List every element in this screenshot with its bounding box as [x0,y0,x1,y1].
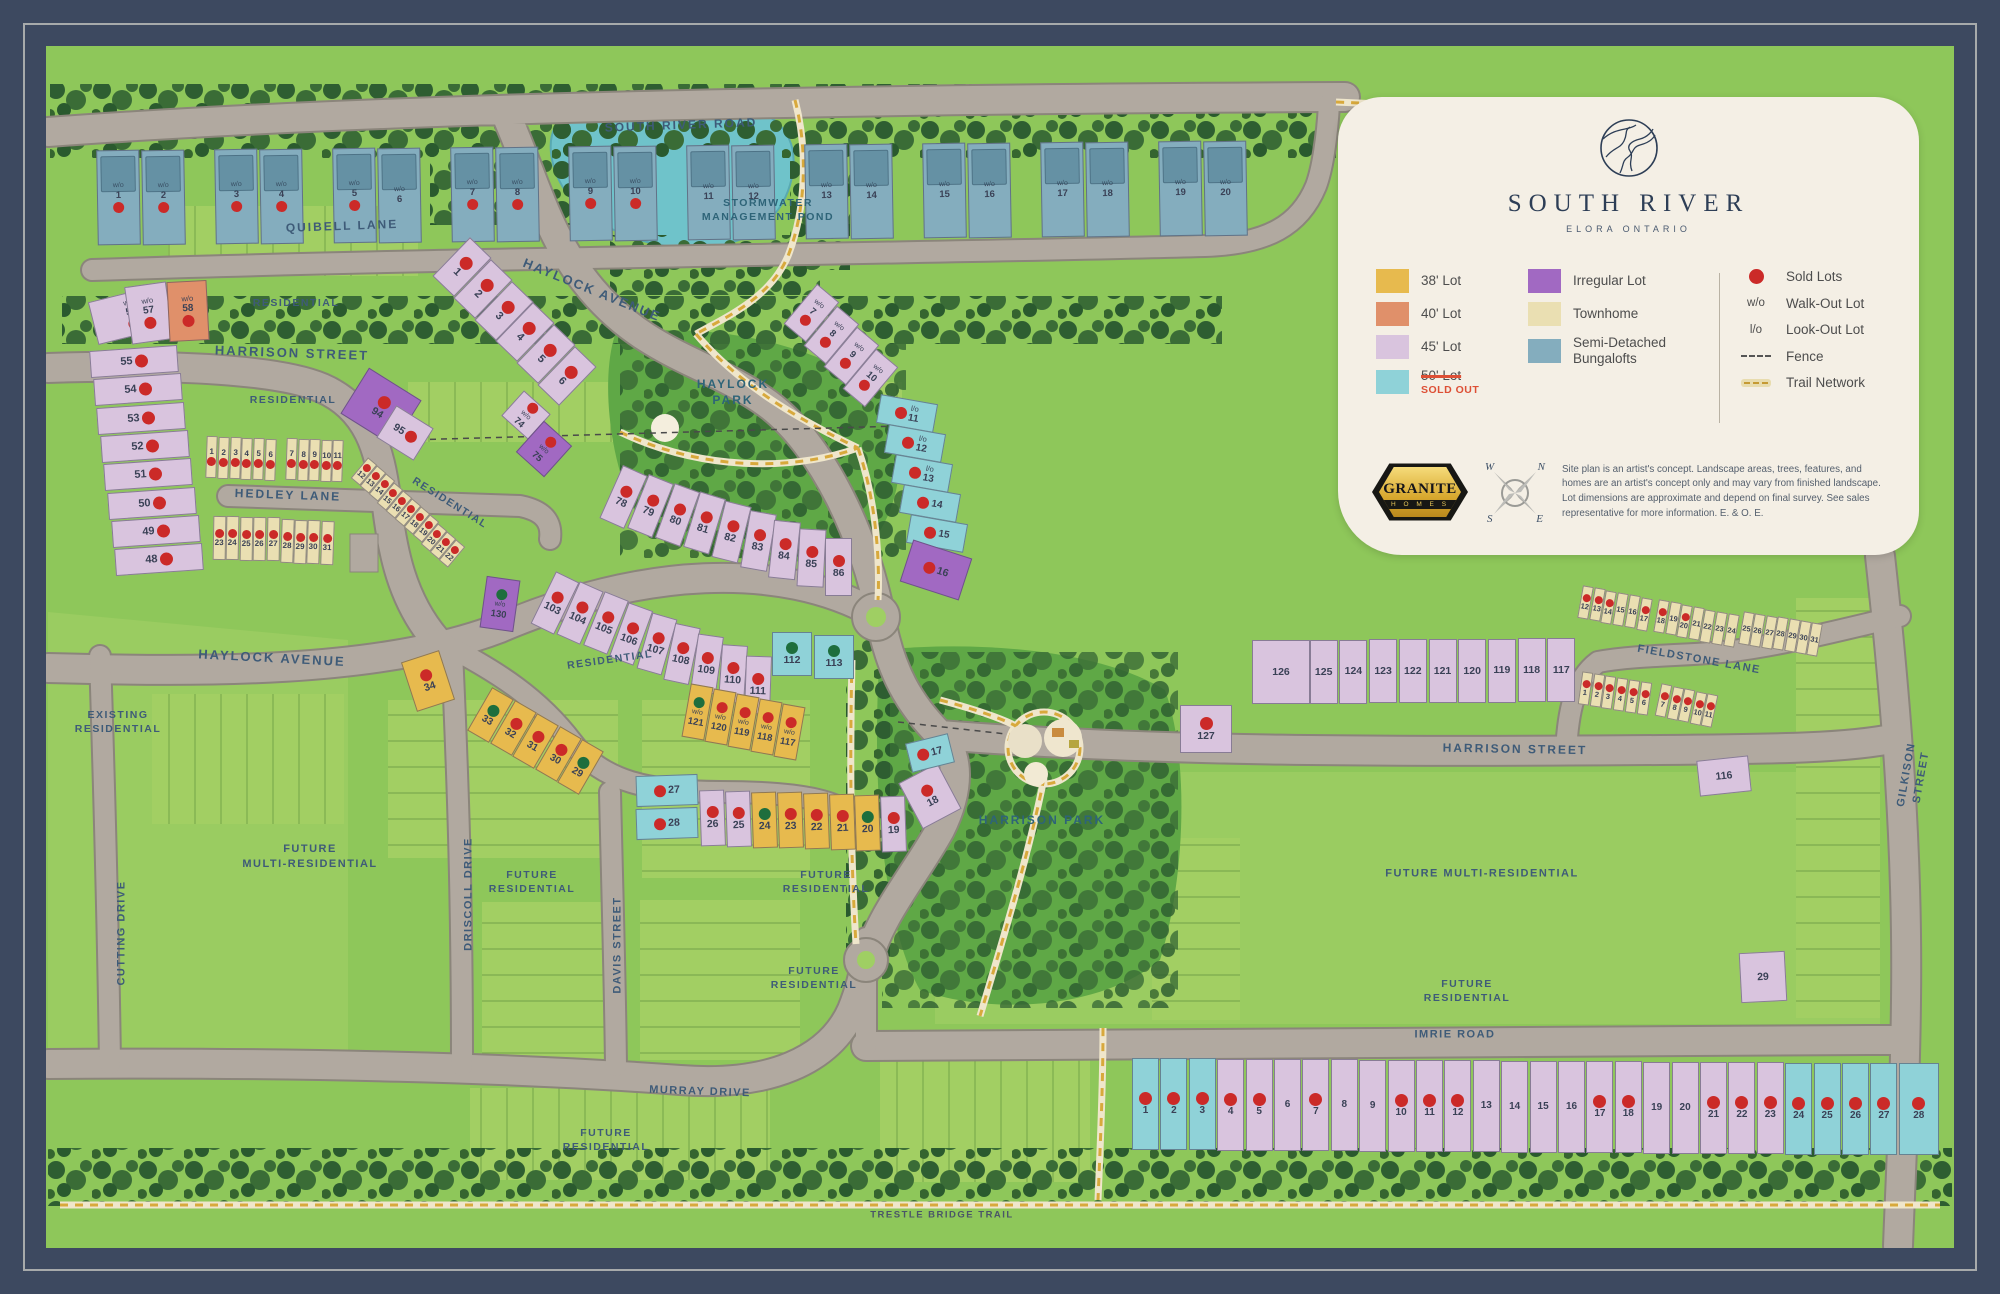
lot-number: 118 [756,731,773,743]
sold-dot [922,560,937,575]
sold-dot [732,807,744,819]
lot-hedleyB-7[interactable]: 7 [285,438,297,480]
lot-quibell-11[interactable]: w/o11 [686,145,731,241]
legend-label: Fence [1786,349,1824,365]
lot-quibell-15[interactable]: w/o15 [922,143,967,239]
sold-dot [266,459,275,468]
lot-number: 8 [1671,703,1677,711]
lot-number: 25 [733,820,745,831]
lot-number: 121 [1434,666,1452,677]
lot-imrie-4[interactable]: 4 [1217,1059,1244,1151]
lot-number: 10 [322,451,331,459]
legend-row: Fence [1738,349,1933,365]
lot-imrie-15[interactable]: 15 [1530,1061,1557,1153]
sold-dot [1200,717,1213,730]
lot-quibell-6[interactable]: w/o6 [377,147,422,243]
lot-quibell-2[interactable]: w/o2 [141,149,186,245]
sold-dot [779,537,792,550]
lot-number: 116 [1715,770,1733,782]
lot-t112113-113[interactable]: 113 [814,635,854,679]
lot-number: 52 [131,441,144,453]
lot-row7886-85[interactable]: 85 [797,529,827,588]
sold-dot [1423,1094,1436,1107]
lot-number: 49 [142,526,155,538]
lot-number: 9 [1683,706,1689,714]
lot-number: 4 [1617,695,1622,703]
lot-number: 24 [228,539,237,547]
lot-number: 31 [1810,635,1820,644]
lot-number: 3 [493,310,505,322]
sold-dot [1764,1096,1777,1109]
lot-number: 3 [1200,1106,1206,1116]
lot-quibell-10[interactable]: w/o10 [613,145,658,241]
lot-row7886-86[interactable]: 86 [825,538,852,596]
lot-number: 12 [748,192,759,202]
legend-divider [1719,273,1720,423]
lot-number: 26 [1753,626,1763,635]
reserved-dot [861,811,873,823]
lot-row126117-123[interactable]: 123 [1369,639,1397,703]
lot-number: 30 [309,543,318,551]
legend-label: Trail Network [1786,375,1865,391]
sold-dot [806,546,819,559]
frame-left [0,0,46,1294]
lot-number: 28 [668,818,680,829]
lot-number: 12 [1452,1108,1463,1118]
sold-dot [1196,1092,1209,1105]
lot-number: 11 [907,413,919,425]
lot-number: 6 [1285,1100,1291,1110]
trail-icon [1741,379,1771,387]
lot-number: 82 [723,532,737,545]
lot-row2619-21[interactable]: 21 [829,794,856,851]
building-footprint [1044,148,1080,185]
lot-number: 25 [1742,624,1752,633]
lot-number: 1 [451,266,463,278]
sold-dot [1139,1092,1152,1105]
lot-quibell-8[interactable]: w/o8 [495,146,540,242]
lot-number: 19 [888,825,900,836]
lot-quibell-14[interactable]: w/o14 [849,143,894,239]
lot-number: 120 [710,721,727,733]
lot-imrie-21[interactable]: 21 [1700,1062,1727,1154]
lot-number: 17 [930,745,944,758]
lot-row126117-126[interactable]: 126 [1252,640,1310,704]
lot-row126117-120[interactable]: 120 [1458,639,1486,703]
sold-dot [145,439,159,453]
lot-hedleyB-11[interactable]: 11 [332,440,344,482]
lot-hedleyC-24[interactable]: 24 [226,516,239,560]
prefix-icon: l/o [1750,324,1762,336]
lot-hedleyB-8[interactable]: 8 [297,438,309,480]
building-footprint [735,150,771,187]
lot-number: 2 [472,288,484,300]
lot-number: 120 [1463,666,1481,677]
building-footprint [336,154,372,191]
sold-dot [762,711,775,724]
lot-imrie-13[interactable]: 13 [1473,1060,1500,1152]
lot-leftcol-49[interactable]: 49 [111,515,201,548]
sold-dot [296,532,305,541]
lot-number: 21 [1708,1110,1719,1120]
frame-right [1954,0,2000,1294]
lot-number: 58 [182,304,194,315]
lot-imrie-16[interactable]: 16 [1558,1061,1585,1153]
lot-number: 9 [312,451,317,459]
lot-number: 86 [833,568,845,579]
lot-number: 2 [1594,691,1599,699]
compass-n: N [1538,461,1545,473]
lot-row2619-25[interactable]: 25 [725,790,752,847]
legend-label: 45' Lot [1421,339,1461,354]
lot-number: 124 [1345,666,1363,677]
lot-number: 5 [256,450,261,458]
building-footprint [690,151,726,188]
lot-number: 24 [759,821,771,832]
building-footprint [100,156,136,193]
lot-number: 29 [1787,631,1797,640]
lot-row2619-19[interactable]: 19 [880,795,907,852]
lot-number: 107 [645,643,665,658]
lot-number: 53 [127,413,140,425]
building-footprint [145,155,181,192]
lot-imrie-20[interactable]: 20 [1672,1062,1699,1154]
lot-t112113-112[interactable]: 112 [772,632,812,676]
lot-number: 26 [707,819,719,830]
sold-dot [182,315,195,328]
lot-row126117-125[interactable]: 125 [1310,640,1338,704]
lot-number: 23 [215,539,224,547]
lot-number: 18 [1102,189,1113,199]
sold-dot [113,201,124,212]
lot-number: 9 [1370,1101,1376,1111]
lot-imrie-25[interactable]: 25 [1814,1063,1841,1155]
building-footprint [808,150,844,187]
sold-dot [283,532,292,541]
sold-dot [254,459,263,468]
building-footprint [499,152,535,189]
lot-number: 29 [1757,971,1769,982]
sold-dot [1224,1093,1237,1106]
lot-number: 7 [1313,1107,1319,1117]
frame-bottom [0,1248,2000,1294]
lot-imrie-17[interactable]: 17 [1586,1061,1613,1153]
lot-row126117-122[interactable]: 122 [1399,639,1427,703]
lot-imrie-22[interactable]: 22 [1728,1062,1755,1154]
sold-dot [1395,1094,1408,1107]
lot-number: 5 [352,189,357,199]
lot-number: 28 [1913,1111,1924,1121]
building-footprint [263,154,299,191]
lot-imrie-18[interactable]: 18 [1615,1061,1642,1153]
sold-dot [1167,1092,1180,1105]
lot-imrie-2[interactable]: 2 [1160,1058,1187,1150]
lot-hedleyA-6[interactable]: 6 [264,438,276,480]
compass-w: W [1485,461,1494,473]
lot-quibell-7[interactable]: w/o7 [450,147,495,243]
legend-panel: SOUTH RIVER ELORA ONTARIO 38' Lot40' Lot… [1338,97,1919,555]
legend-swatch [1376,335,1409,359]
lot-number: 1 [1143,1106,1149,1116]
lot-quibell-1[interactable]: w/o1 [96,150,141,246]
lot-number: 8 [301,450,306,458]
building-footprint [454,153,490,190]
lot-number: 11 [1704,711,1713,720]
lot-number: 20 [1680,1103,1691,1113]
lot-number: 17 [1638,614,1648,623]
lot-number: 121 [687,716,704,728]
lot-number: 7 [289,450,294,458]
lot-leftcol-53[interactable]: 53 [96,402,186,435]
lot-row126117-119[interactable]: 119 [1488,639,1516,703]
lot-number: 85 [805,559,817,570]
legend-row: l/oLook-Out Lot [1738,322,1933,338]
sold-dot [1593,1095,1606,1108]
sold-dot [321,460,330,469]
lot-hedleyD-29[interactable]: 29 [293,519,307,563]
lot-row126117-124[interactable]: 124 [1339,640,1367,704]
lot-t2728-28[interactable]: 28 [635,807,698,840]
lot-row126117-117[interactable]: 117 [1547,638,1575,702]
legend-swatch [1528,339,1561,363]
lot-hedleyA-3[interactable]: 3 [229,437,241,479]
lot-number: 110 [724,675,742,687]
sold-dot [134,354,148,368]
lot-number: 113 [826,658,843,669]
lot-lot29r-29[interactable]: 29 [1739,951,1788,1003]
lot-imrie-5[interactable]: 5 [1246,1059,1273,1151]
reserved-dot [693,696,706,709]
lot-t2728-27[interactable]: 27 [635,774,698,807]
lot-hedleyA-2[interactable]: 2 [217,436,229,478]
sold-dot [276,200,287,211]
lot-number: 22 [1703,622,1713,631]
lot-hedleyD-31[interactable]: 31 [320,520,334,564]
lot-hedleyA-1[interactable]: 1 [205,436,217,478]
lot-imrie-23[interactable]: 23 [1757,1062,1784,1154]
lot-row2619-20[interactable]: 20 [854,794,881,851]
lot-number: 15 [938,529,951,541]
legend: 38' Lot40' Lot45' Lot50' LotSOLD OUT Irr… [1376,269,1893,427]
reserved-dot [828,645,840,657]
sold-dot [255,530,264,539]
lot-number: 20 [1679,621,1689,630]
lot-number: 15 [939,190,950,200]
sold-dot [630,197,641,208]
legend-label: Townhome [1573,306,1638,321]
lot-row2619-22[interactable]: 22 [803,793,830,850]
legend-row: Semi-Detached Bungalofts [1528,335,1713,366]
granite-homes-logo: GRANITE H O M E S [1372,461,1468,523]
lot-number: 3 [1606,693,1611,701]
sold-dot [309,533,318,542]
lot-imrie-28[interactable]: 28 [1899,1063,1939,1155]
legend-row: 50' LotSOLD OUT [1376,368,1526,396]
building-footprint [381,153,417,190]
lot-number: 4 [514,331,526,343]
lot-lot130-130[interactable]: w/o130 [480,576,521,632]
parking-area [350,534,378,572]
lot-imrie-26[interactable]: 26 [1842,1063,1869,1155]
lot-number: 24 [1793,1111,1804,1121]
lot-hedleyC-27[interactable]: 27 [266,517,279,561]
river-logo-icon [1598,117,1660,179]
lot-imrie-27[interactable]: 27 [1870,1063,1897,1155]
lot-quibell-5[interactable]: w/o5 [332,148,377,244]
lot-imrie-7[interactable]: 7 [1302,1059,1329,1151]
compass-e: E [1536,513,1543,525]
lot-hedleyB-9[interactable]: 9 [308,439,320,481]
lot-leftcol-50[interactable]: 50 [107,486,197,519]
sold-dot [158,201,169,212]
lot-number: 8 [1342,1100,1348,1110]
sold-dot [156,524,170,538]
lot-quibell-17[interactable]: w/o17 [1040,142,1085,238]
lot-hedleyA-5[interactable]: 5 [252,438,264,480]
lot-number: 22 [810,822,822,833]
legend-row: 45' Lot [1376,335,1526,359]
sold-dot [909,465,923,479]
lot-lot127-127[interactable]: 127 [1180,705,1232,753]
reserved-dot [495,588,507,600]
sold-dot [1792,1097,1805,1110]
sold-dot [268,530,277,539]
lot-number: 10 [1692,708,1702,717]
lot-number: 79 [641,505,656,519]
lot-number: 22 [1736,1110,1747,1120]
sold-dot-icon [1749,269,1764,284]
lot-quibell-9[interactable]: w/o9 [568,146,613,242]
lot-number: 17 [1594,1109,1605,1119]
lot-lot116-116[interactable]: 116 [1696,755,1751,796]
lot-hedleyD-28[interactable]: 28 [280,519,294,563]
lot-number: 13 [1592,605,1602,614]
lot-number: 18 [1623,1109,1634,1119]
lot-quibell-20[interactable]: w/o20 [1203,140,1248,236]
sold-dot [218,457,227,466]
lot-number: 5 [1629,697,1634,705]
lot-imrie-24[interactable]: 24 [1785,1063,1812,1155]
lot-row126117-118[interactable]: 118 [1518,638,1546,702]
lot-row2619-26[interactable]: 26 [699,790,726,847]
lot-number: 117 [779,736,796,748]
legend-row: w/oWalk-Out Lot [1738,296,1933,312]
lot-imrie-3[interactable]: 3 [1189,1058,1216,1150]
lot-number: 81 [695,523,709,536]
lot-quibell-4[interactable]: w/o4 [259,148,304,244]
lot-number: 106 [619,632,639,648]
lot-quibell-13[interactable]: w/o13 [804,144,849,240]
legend-row: Trail Network [1738,375,1933,391]
lot-hedleyD-30[interactable]: 30 [307,520,321,564]
frame-top [0,0,2000,46]
lot-imrie-9[interactable]: 9 [1359,1060,1386,1152]
building-footprint [218,155,254,192]
lot-number: 29 [296,542,305,550]
sold-dot [1735,1096,1748,1109]
sold-dot [785,716,798,729]
lot-number: 1 [116,191,121,201]
reserved-dot [786,642,798,654]
sold-dot [159,552,173,566]
lot-number: 50 [138,498,151,510]
lot-number: 15 [1616,605,1626,614]
sold-dot [833,555,845,567]
lot-number: 34 [423,680,437,694]
lot-number: 7 [1660,701,1666,709]
sold-dot [215,529,224,538]
lot-number: 119 [733,726,750,738]
lot-hedleyC-26[interactable]: 26 [253,517,266,561]
lot-quibell-18[interactable]: w/o18 [1085,141,1130,237]
lot-row126117-121[interactable]: 121 [1429,639,1457,703]
lot-number: 11 [334,452,343,460]
lot-number: 2 [1171,1106,1177,1116]
lot-imrie-6[interactable]: 6 [1274,1059,1301,1151]
legend-row: 40' Lot [1376,302,1526,326]
legend-label: Look-Out Lot [1786,322,1864,338]
building-footprint [572,152,608,189]
lot-hedleyA-4[interactable]: 4 [241,437,253,479]
legend-lot-types-col1: 38' Lot40' Lot45' Lot50' LotSOLD OUT [1376,269,1526,396]
building-footprint [1207,146,1243,183]
lot-imrie-8[interactable]: 8 [1331,1059,1358,1151]
lot-number: 31 [322,543,331,551]
lot-imrie-11[interactable]: 11 [1416,1060,1443,1152]
lot-number: 123 [1374,666,1392,677]
lot-number: 54 [124,384,137,396]
lot-hedleyC-23[interactable]: 23 [213,516,226,560]
lot-number: 13 [1481,1101,1492,1111]
legend-lot-types-col2: Irregular LotTownhomeSemi-Detached Bunga… [1528,269,1713,366]
sold-dot [298,459,307,468]
lot-quibell-12[interactable]: w/o12 [731,144,776,240]
lot-number: 24 [1726,626,1736,635]
lot-number: 13 [821,191,832,201]
lot-number: 111 [750,686,767,697]
lot-quibell-3[interactable]: w/o3 [214,149,259,245]
lot-row2619-23[interactable]: 23 [777,792,804,849]
lot-number: 11 [703,192,713,202]
lot-number: 6 [396,195,401,205]
lot-row2619-24[interactable]: 24 [751,791,778,848]
lot-number: 10 [1396,1108,1407,1118]
lot-number: 15 [1538,1102,1549,1112]
lot-imrie-12[interactable]: 12 [1444,1060,1471,1152]
lot-number: 6 [268,450,273,458]
lot-imrie-14[interactable]: 14 [1501,1061,1528,1153]
lot-imrie-10[interactable]: 10 [1388,1060,1415,1152]
development-location: ELORA ONTARIO [1338,224,1919,234]
lot-quibell-19[interactable]: w/o19 [1158,141,1203,237]
lot-lot58-58[interactable]: w/o58 [166,280,209,342]
lot-number: 22 [444,551,455,562]
sold-dot [207,457,216,466]
lot-quibell-16[interactable]: w/o16 [967,142,1012,238]
sold-dot [1821,1097,1834,1110]
lot-imrie-1[interactable]: 1 [1132,1058,1159,1150]
legend-row: Irregular Lot [1528,269,1713,293]
lot-hedleyC-25[interactable]: 25 [239,516,252,560]
lot-number: 4 [245,449,250,457]
lot-imrie-19[interactable]: 19 [1643,1062,1670,1154]
legend-row: 38' Lot [1376,269,1526,293]
sold-dot [512,198,523,209]
lot-number: 16 [984,190,995,200]
sold-dot [1912,1097,1925,1110]
sold-dot [467,198,478,209]
lot-number: 12 [1580,603,1590,612]
